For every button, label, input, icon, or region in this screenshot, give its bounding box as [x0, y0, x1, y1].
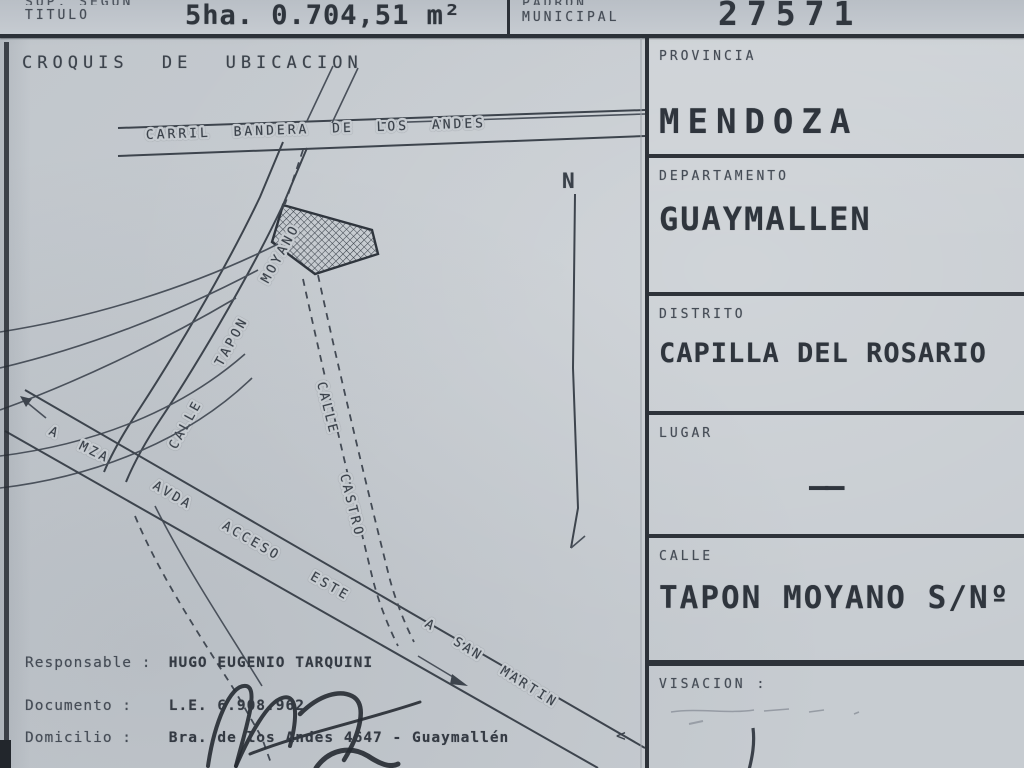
departamento-value: GUAYMALLEN: [659, 200, 1024, 238]
field-provincia: PROVINCIA MENDOZA: [649, 38, 1024, 158]
croquis-title: CROQUIS DE UBICACION: [22, 53, 363, 73]
domicilio-line: Domicilio : Bra. de los Andes 4647 - Gua…: [25, 730, 509, 746]
croquis-panel: CROQUIS DE UBICACION CARRIL BANDERA DE L…: [0, 38, 645, 768]
departamento-label: DEPARTAMENTO: [659, 169, 789, 184]
responsable-value: HUGO EUGENIO TARQUINI: [169, 655, 373, 671]
documento-label: Documento :: [25, 698, 160, 714]
field-distrito: DISTRITO CAPILLA DEL ROSARIO: [649, 296, 1024, 415]
tapon-moyano-south-dashed: [135, 516, 272, 766]
distrito-value: CAPILLA DEL ROSARIO: [659, 338, 1024, 369]
responsable-line: Responsable : HUGO EUGENIO TARQUINI: [25, 655, 373, 671]
to-san-martin-label: A SAN MARTIN: [422, 617, 560, 711]
scan-left-edge: [4, 42, 9, 768]
padron-municipal-number: 27571: [718, 0, 862, 33]
domicilio-label: Domicilio :: [25, 730, 160, 746]
provincia-label: PROVINCIA: [659, 49, 756, 64]
street-above-road-right: [332, 68, 358, 123]
street-above-road-left: [307, 66, 333, 121]
documento-value: L.E. 6.908.962: [169, 698, 305, 714]
titulo-area-value: 5ha. 0.704,51 m²: [185, 0, 461, 31]
acceso-este-label: AVDA ACCESO ESTE: [150, 478, 353, 604]
calle-castro-label: CALLE CASTRO: [313, 380, 366, 539]
stray-mark: <: [616, 726, 626, 745]
municipal-label: MUNICIPAL: [522, 10, 619, 25]
field-calle: CALLE TAPON MOYANO S/Nº: [649, 538, 1024, 666]
lugar-label: LUGAR: [659, 426, 713, 441]
calle-label: CALLE: [659, 549, 713, 564]
data-panel: PROVINCIA MENDOZA DEPARTAMENTO GUAYMALLE…: [645, 38, 1024, 768]
carril-road-label: CARRIL BANDERA DE LOS ANDES: [146, 116, 487, 143]
scanned-plan-document: SUP. SEGUN TITULO 5ha. 0.704,51 m² PADRO…: [0, 0, 1024, 768]
sup-segun-label-cut: SUP. SEGUN: [25, 0, 133, 5]
responsable-label: Responsable :: [25, 655, 160, 671]
header-strip: SUP. SEGUN TITULO 5ha. 0.704,51 m² PADRO…: [0, 0, 1024, 38]
visacion-faint-ghost-text: [671, 709, 859, 714]
field-lugar: LUGAR ——: [649, 415, 1024, 538]
documento-line: Documento : L.E. 6.908.962: [25, 698, 305, 714]
tapon-moyano-right-line: [126, 148, 307, 482]
tapon-moyano-label: CALLE TAPON MOYANO: [166, 222, 303, 452]
visacion-marks: [659, 696, 1019, 768]
field-departamento: DEPARTAMENTO GUAYMALLEN: [649, 158, 1024, 296]
visacion-pen-tick: [749, 728, 754, 768]
acceso-este-lower-line: [5, 431, 598, 768]
north-indicator-label: N: [562, 169, 575, 193]
padron-label-cut: PADRON: [522, 0, 587, 5]
north-indicator-line: [571, 194, 578, 548]
visacion-label: VISACION :: [659, 677, 767, 692]
domicilio-value: Bra. de los Andes 4647 - Guaymallén: [169, 730, 510, 746]
calle-value: TAPON MOYANO S/Nº: [659, 580, 1024, 616]
to-san-martin-arrowhead: [450, 674, 468, 686]
ramp-curve-5: [0, 378, 252, 488]
field-visacion: VISACION :: [649, 666, 1024, 768]
header-divider: [507, 0, 510, 34]
titulo-label: TITULO: [25, 8, 90, 23]
lugar-value: ——: [809, 467, 1024, 505]
visacion-faint-dash: [689, 721, 703, 724]
distrito-label: DISTRITO: [659, 307, 746, 322]
provincia-value: MENDOZA: [659, 102, 1024, 142]
scan-corner-blob: [0, 740, 11, 768]
